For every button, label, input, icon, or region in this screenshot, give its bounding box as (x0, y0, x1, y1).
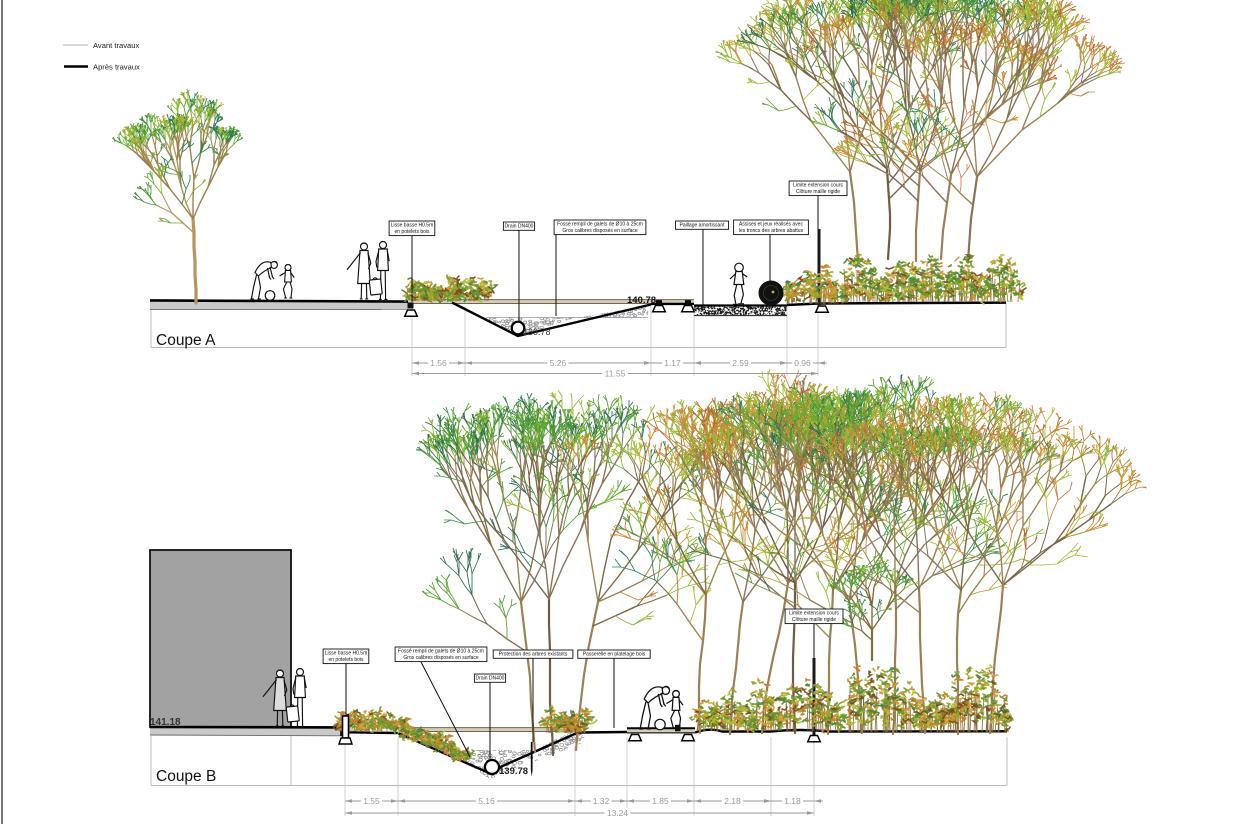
svg-text:139.78: 139.78 (499, 766, 528, 777)
svg-text:1.32: 1.32 (593, 796, 610, 806)
svg-text:1.18: 1.18 (784, 796, 801, 806)
svg-text:en potelets bois: en potelets bois (394, 229, 430, 235)
svg-text:1.17: 1.17 (664, 358, 681, 368)
svg-text:Gros calibres disposés en surf: Gros calibres disposés en surface (403, 655, 479, 661)
svg-text:5.16: 5.16 (478, 796, 495, 806)
svg-text:1.85: 1.85 (652, 796, 669, 806)
svg-text:13.24: 13.24 (607, 808, 629, 818)
svg-text:2.59: 2.59 (732, 358, 749, 368)
svg-text:Clôture maille rigide: Clôture maille rigide (792, 617, 836, 623)
svg-text:Gros calibres disposés en surf: Gros calibres disposés en surface (562, 228, 638, 234)
svg-text:Limite extension cours: Limite extension cours (793, 183, 843, 189)
svg-text:Avant travaux: Avant travaux (93, 41, 139, 50)
svg-text:Coupe A: Coupe A (156, 332, 216, 349)
svg-text:1.56: 1.56 (430, 358, 447, 368)
svg-text:139.78: 139.78 (523, 327, 551, 337)
svg-text:5.26: 5.26 (550, 358, 567, 368)
svg-text:Protection des arbres existant: Protection des arbres existants (499, 652, 568, 658)
svg-text:Après travaux: Après travaux (93, 63, 140, 72)
svg-text:Passerelle en platelage bois: Passerelle en platelage bois (583, 652, 646, 658)
svg-text:Lisse basse H0.5m: Lisse basse H0.5m (391, 223, 434, 229)
svg-text:Coupe B: Coupe B (156, 768, 216, 785)
svg-text:en potelets bois: en potelets bois (328, 657, 364, 663)
svg-text:Drain DN400: Drain DN400 (476, 676, 505, 682)
svg-text:Paillage amortissant: Paillage amortissant (679, 223, 725, 229)
svg-text:141.18: 141.18 (150, 717, 181, 728)
svg-text:1.55: 1.55 (363, 796, 380, 806)
svg-text:0.96: 0.96 (794, 358, 811, 368)
svg-text:Clôture maille rigide: Clôture maille rigide (796, 189, 840, 195)
svg-text:Fossé rempli de galets de Ø10: Fossé rempli de galets de Ø10 à 25cm (398, 649, 484, 655)
svg-text:Limite extension cours: Limite extension cours (789, 611, 839, 617)
svg-text:Lisse basse H0.5m: Lisse basse H0.5m (325, 651, 368, 657)
svg-text:Fossé rempli de galets de Ø10: Fossé rempli de galets de Ø10 à 25cm (557, 222, 643, 228)
svg-text:140.78: 140.78 (627, 295, 656, 306)
svg-text:2.18: 2.18 (724, 796, 741, 806)
svg-text:Drain DN400: Drain DN400 (505, 224, 534, 230)
svg-text:Assises et jeux réalisés avec: Assises et jeux réalisés avec (739, 222, 803, 228)
svg-text:les troncs des arbres abattus: les troncs des arbres abattus (739, 228, 804, 234)
svg-text:11.55: 11.55 (605, 369, 626, 379)
